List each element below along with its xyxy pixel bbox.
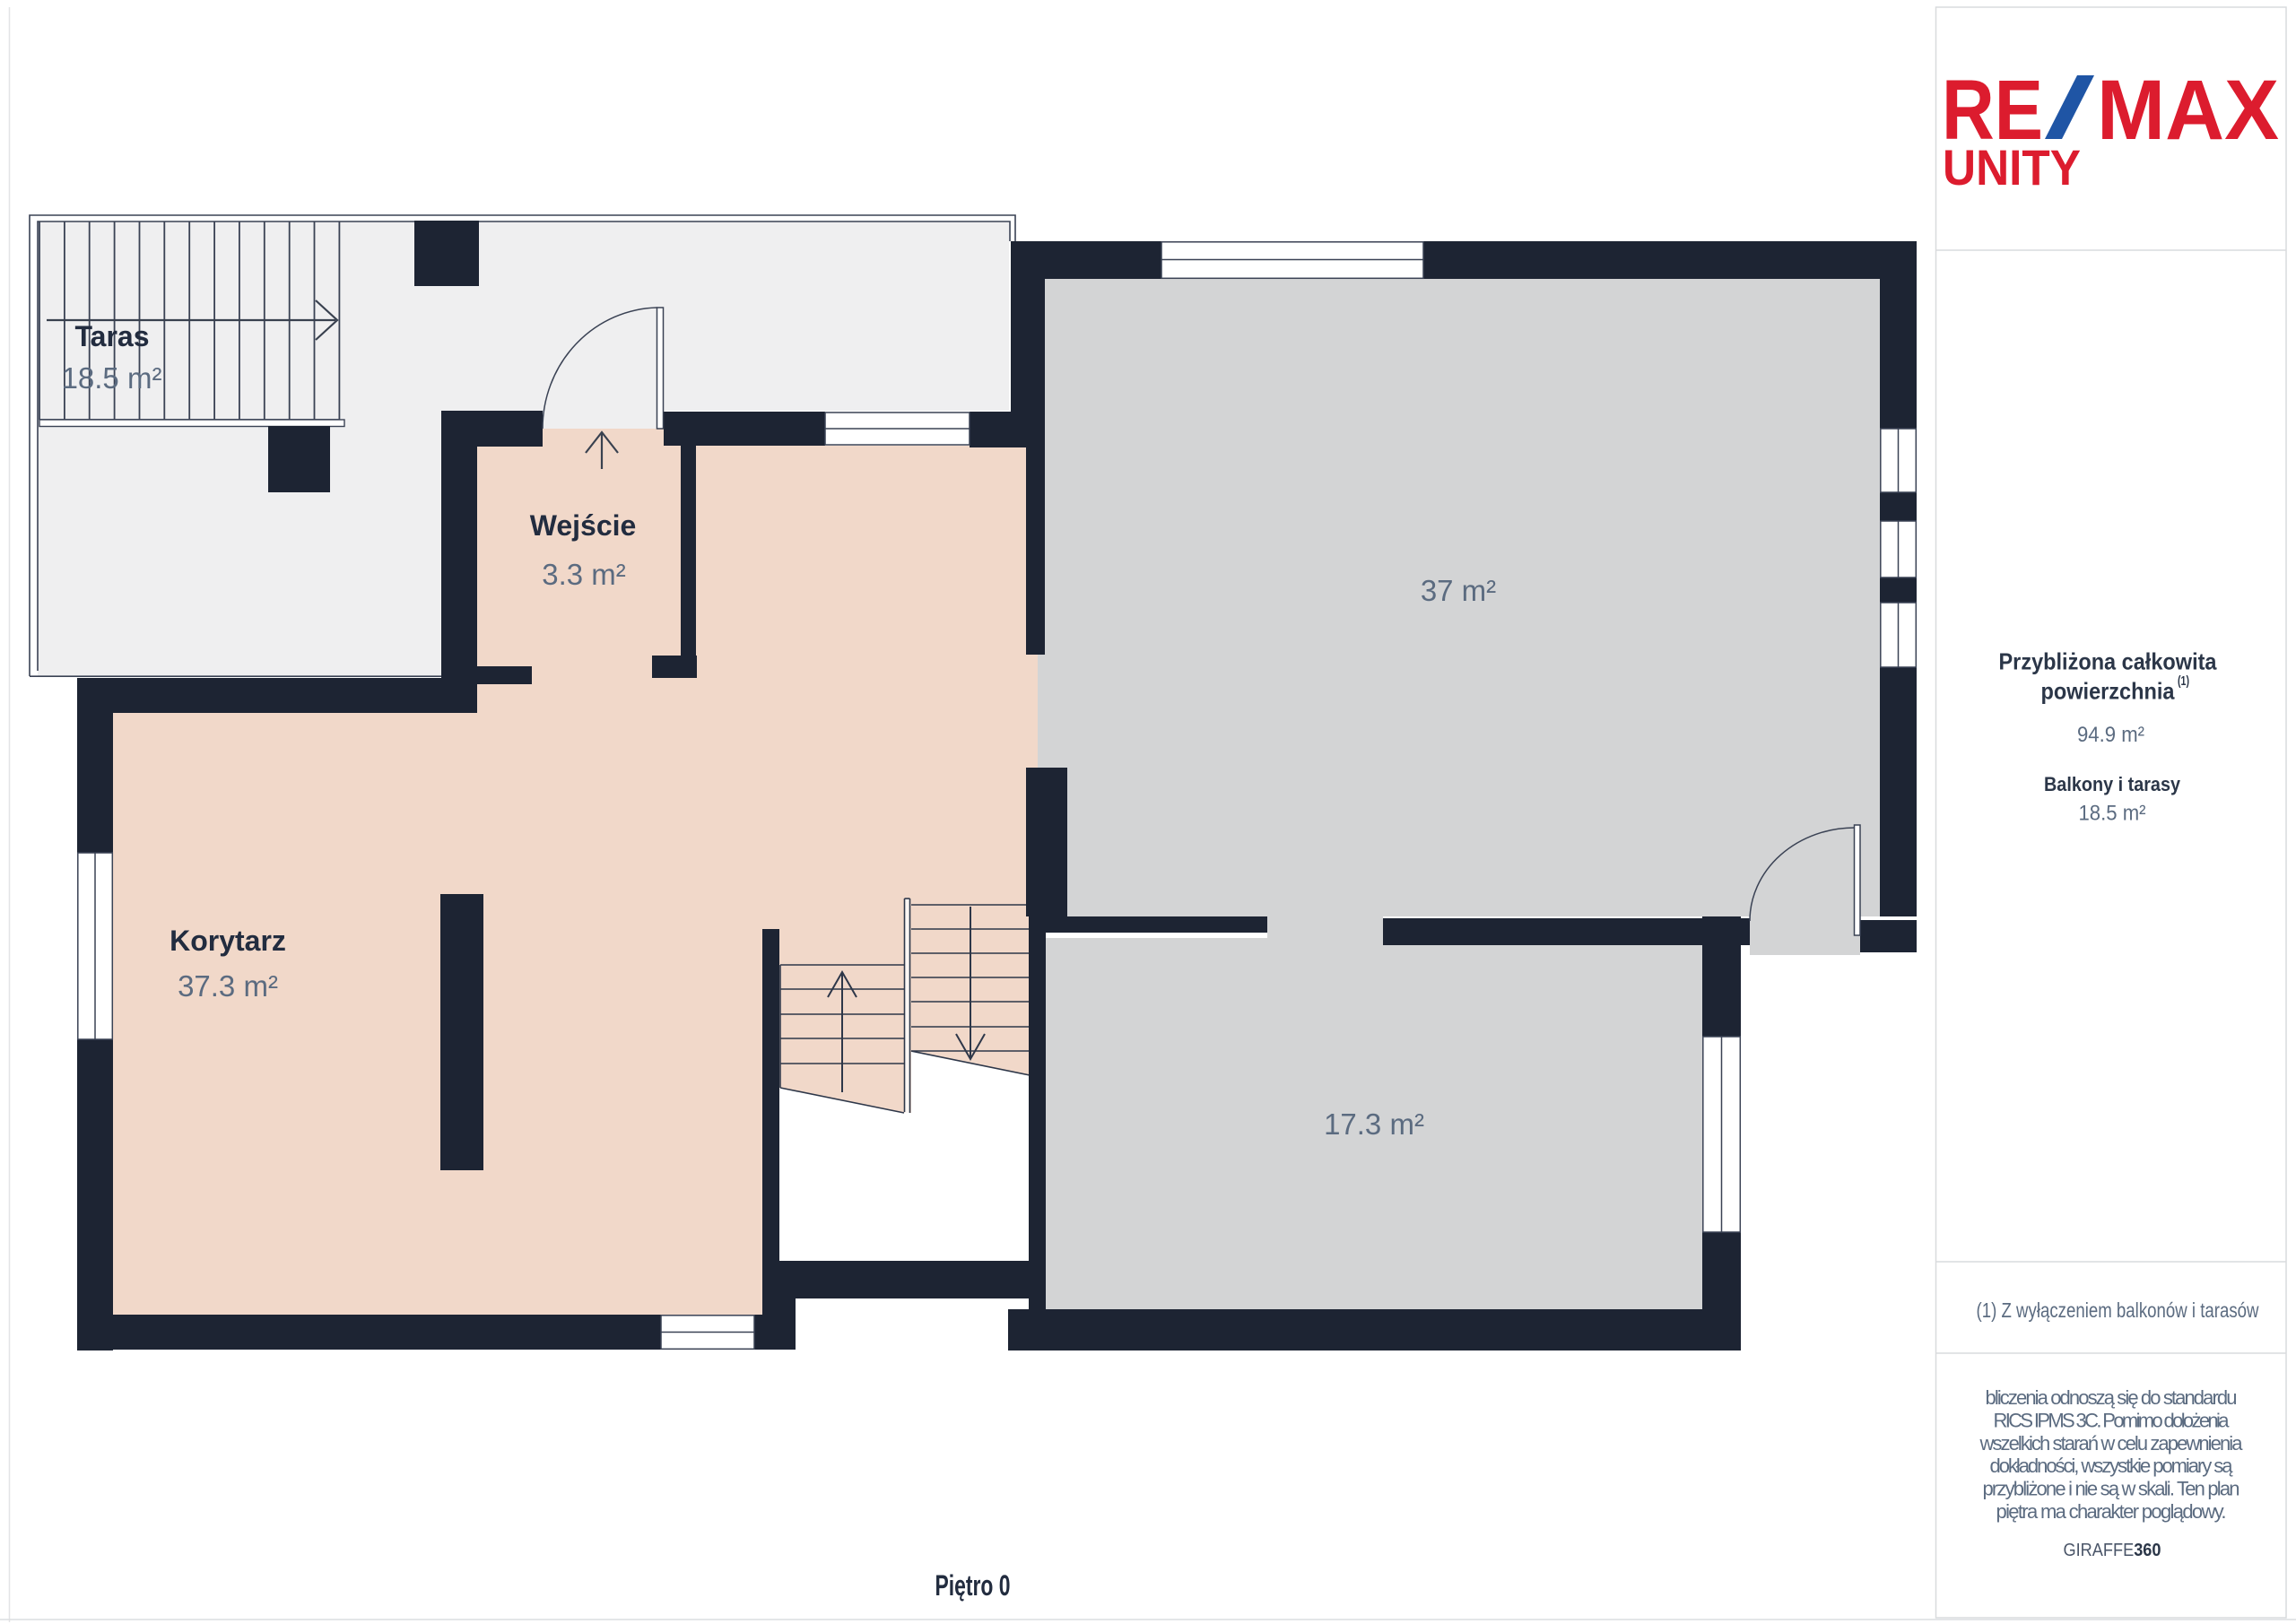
svg-text:Korytarz: Korytarz: [170, 925, 286, 957]
svg-text:RICS IPMS 3C. Pomimo dołożenia: RICS IPMS 3C. Pomimo dołożenia: [1994, 1409, 2231, 1431]
svg-text:GIRAFFE360: GIRAFFE360: [2064, 1541, 2161, 1560]
svg-text:3.3 m²: 3.3 m²: [542, 558, 626, 591]
svg-text:17.3 m²: 17.3 m²: [1324, 1107, 1424, 1141]
svg-text:Piętro 0: Piętro 0: [935, 1569, 1011, 1602]
svg-text:MAX: MAX: [2097, 63, 2279, 158]
svg-text:(1) Z wyłączeniem balkonów i t: (1) Z wyłączeniem balkonów i tarasów: [1977, 1298, 2259, 1322]
svg-text:dokładności, wszystkie pomiary: dokładności, wszystkie pomiary są: [1990, 1455, 2234, 1477]
svg-text:Balkony i tarasy: Balkony i tarasy: [2044, 773, 2181, 795]
svg-text:wszelkich starań w celu zapewn: wszelkich starań w celu zapewnienia: [1979, 1432, 2244, 1455]
svg-text:przybliżone i nie są w skali.: przybliżone i nie są w skali. Ten plan: [1983, 1478, 2240, 1500]
svg-text:18.5 m²: 18.5 m²: [62, 361, 162, 395]
svg-text:94.9 m²: 94.9 m²: [2077, 723, 2144, 747]
svg-text:37 m²: 37 m²: [1421, 574, 1496, 607]
svg-text:37.3 m²: 37.3 m²: [178, 969, 278, 1003]
svg-text:Taras: Taras: [74, 320, 149, 352]
svg-text:UNITY: UNITY: [1943, 139, 2081, 195]
svg-text:(1): (1): [2178, 673, 2189, 689]
svg-text:powierzchnia: powierzchnia: [2041, 678, 2175, 705]
svg-text:Przybliżona całkowita: Przybliżona całkowita: [1999, 648, 2217, 675]
svg-text:piętra ma charakter poglądowy.: piętra ma charakter poglądowy.: [1996, 1500, 2227, 1523]
svg-text:bliczenia odnoszą się do stand: bliczenia odnoszą się do standardu: [1986, 1386, 2238, 1409]
svg-text:18.5 m²: 18.5 m²: [2079, 802, 2146, 826]
svg-text:Wejście: Wejście: [530, 509, 637, 542]
